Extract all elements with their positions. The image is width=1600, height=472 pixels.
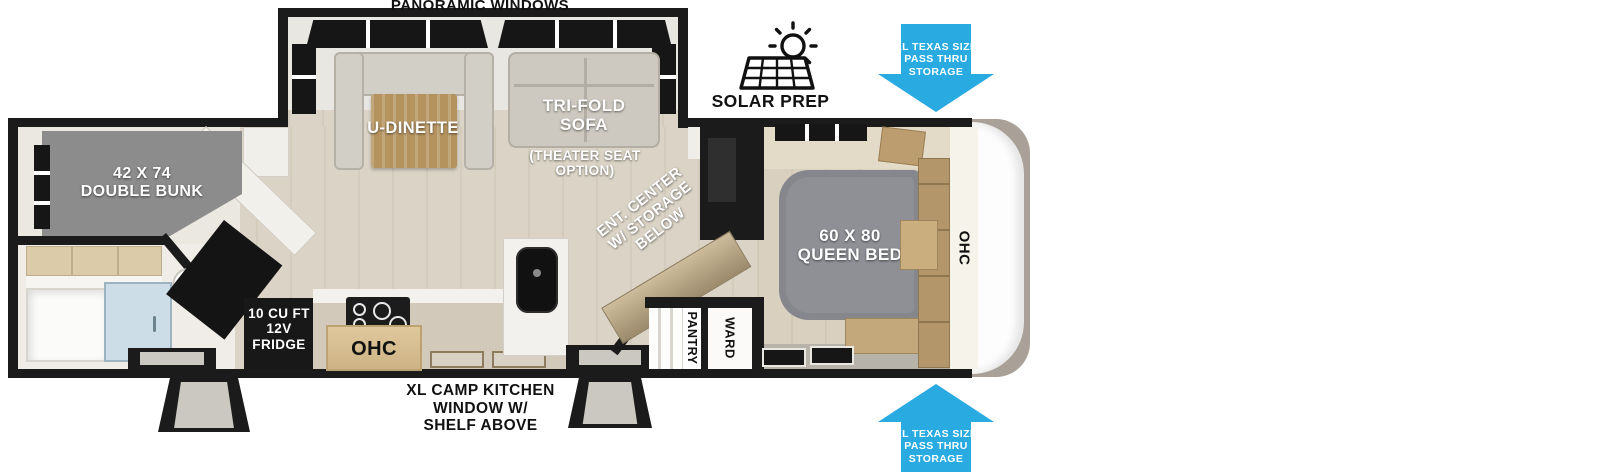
- window-mullion: [555, 20, 559, 48]
- bunk-bath-wall: [8, 236, 168, 245]
- window-mullion: [34, 171, 50, 175]
- double-bunk-label: 42 X 74 DOUBLE BUNK: [52, 165, 232, 201]
- fridge: 10 CU FT 12V FRIDGE: [244, 298, 314, 369]
- window-mullion: [292, 75, 316, 79]
- panoramic-windows-label: PANORAMIC WINDOWS: [330, 0, 630, 14]
- window-mullion: [613, 20, 617, 48]
- arrow-down-icon: XL TEXAS SIZE PASS THRU STORAGE: [876, 24, 996, 114]
- entry-step: [579, 350, 641, 365]
- pantry-label: PANTRY: [685, 312, 699, 365]
- burner: [353, 303, 366, 316]
- entry-step: [140, 352, 204, 365]
- theater-seat-option-label: (THEATER SEAT OPTION): [500, 148, 670, 179]
- slideout-wall-left: [278, 8, 288, 128]
- floorplan-canvas: U-DINETTE TRI-FOLD SOFA (THEATER SEAT OP…: [0, 0, 1600, 472]
- dinette-bench-right: [464, 52, 494, 170]
- pass-thru-storage-label: XL TEXAS SIZE PASS THRU STORAGE: [886, 428, 986, 465]
- slideout-wall-right: [678, 8, 688, 128]
- u-dinette-label: U-DINETTE: [338, 119, 488, 138]
- dinette-bench-left: [334, 52, 364, 170]
- burner: [373, 302, 391, 320]
- cabinet-divider: [117, 247, 119, 275]
- solar-prep-label: SOLAR PREP: [698, 92, 843, 112]
- bedroom-ohc-label: OHC: [956, 231, 973, 266]
- pass-thru-storage-label: XL TEXAS SIZE PASS THRU STORAGE: [886, 41, 986, 78]
- ward-label: WARD: [723, 317, 738, 359]
- bedroom-window-bottom: [810, 346, 854, 365]
- door-handle: [153, 316, 156, 332]
- bunk-window: [34, 145, 50, 229]
- rear-entry-steps-tread: [170, 382, 238, 428]
- counter-cover: [430, 351, 484, 368]
- bath-entry-door: [128, 348, 216, 369]
- cabinet-divider: [71, 247, 73, 275]
- bedroom-window-top: [775, 124, 867, 141]
- kitchen-overhead-cabinet: OHC: [326, 325, 422, 371]
- pantry-ward-divider: [701, 308, 708, 369]
- kitchen-ohc-label: OHC: [328, 338, 420, 361]
- window-mullion: [426, 20, 430, 48]
- window-mullion: [805, 124, 809, 141]
- queen-bed-label: 60 X 80 QUEEN BED: [785, 226, 915, 265]
- headboard-cabinet: [900, 220, 938, 270]
- panoramic-window: [306, 20, 488, 48]
- camp-kitchen-label: XL CAMP KITCHEN WINDOW W/ SHELF ABOVE: [368, 382, 593, 435]
- tri-fold-sofa-label: TRI-FOLD SOFA: [514, 96, 654, 135]
- window-mullion: [34, 201, 50, 205]
- window-mullion: [366, 20, 370, 48]
- slideout-side-window: [292, 44, 316, 114]
- fridge-label: 10 CU FT 12V FRIDGE: [244, 306, 314, 352]
- panoramic-window: [498, 20, 672, 48]
- kitchen-sink: [516, 247, 558, 313]
- faucet: [533, 269, 541, 277]
- shower: [26, 288, 106, 362]
- arrow-up-icon: XL TEXAS SIZE PASS THRU STORAGE: [876, 384, 996, 472]
- wall-bottom: [8, 369, 972, 378]
- corridor-wall: [645, 297, 764, 308]
- solar-panel-icon: [735, 20, 825, 94]
- sofa-backrest-seam: [514, 84, 654, 87]
- wall-left: [8, 118, 18, 378]
- bedroom-window-bottom: [762, 348, 806, 367]
- wall-top-rear: [8, 118, 286, 127]
- window-mullion: [835, 124, 839, 141]
- bath-overhead-cabinet: [26, 246, 162, 276]
